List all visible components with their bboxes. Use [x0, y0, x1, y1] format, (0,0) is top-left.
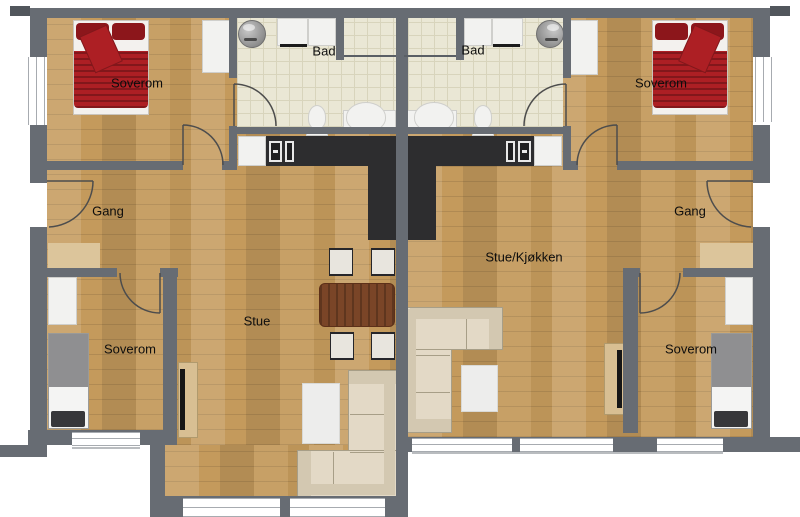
- room-label-bad-left: Bad: [312, 44, 335, 59]
- room-label-soverom-bottom-left: Soverom: [104, 342, 156, 357]
- room-label-bad-right: Bad: [461, 43, 484, 58]
- room-label-stue: Stue: [244, 314, 271, 329]
- room-label-soverom-top-right: Soverom: [635, 76, 687, 91]
- door-bedroomBL: [120, 273, 160, 313]
- room-label-stue-kjokken: Stue/Kjøkken: [485, 250, 562, 265]
- door-bedroomTR: [577, 125, 617, 165]
- door-bath-right: [524, 84, 566, 126]
- entry-door-right: [707, 181, 753, 227]
- door-bedroomBR: [640, 273, 680, 313]
- room-label-soverom-bottom-right: Soverom: [665, 342, 717, 357]
- room-label-gang-left: Gang: [92, 204, 124, 219]
- door-bath-left: [234, 84, 276, 126]
- room-label-soverom-top-left: Soverom: [111, 76, 163, 91]
- room-label-gang-right: Gang: [674, 204, 706, 219]
- door-bedroomTL: [183, 125, 223, 165]
- floor-plan: Soverom Bad Bad Soverom Gang Gang Stue/K…: [0, 0, 800, 517]
- entry-door-left: [47, 181, 93, 227]
